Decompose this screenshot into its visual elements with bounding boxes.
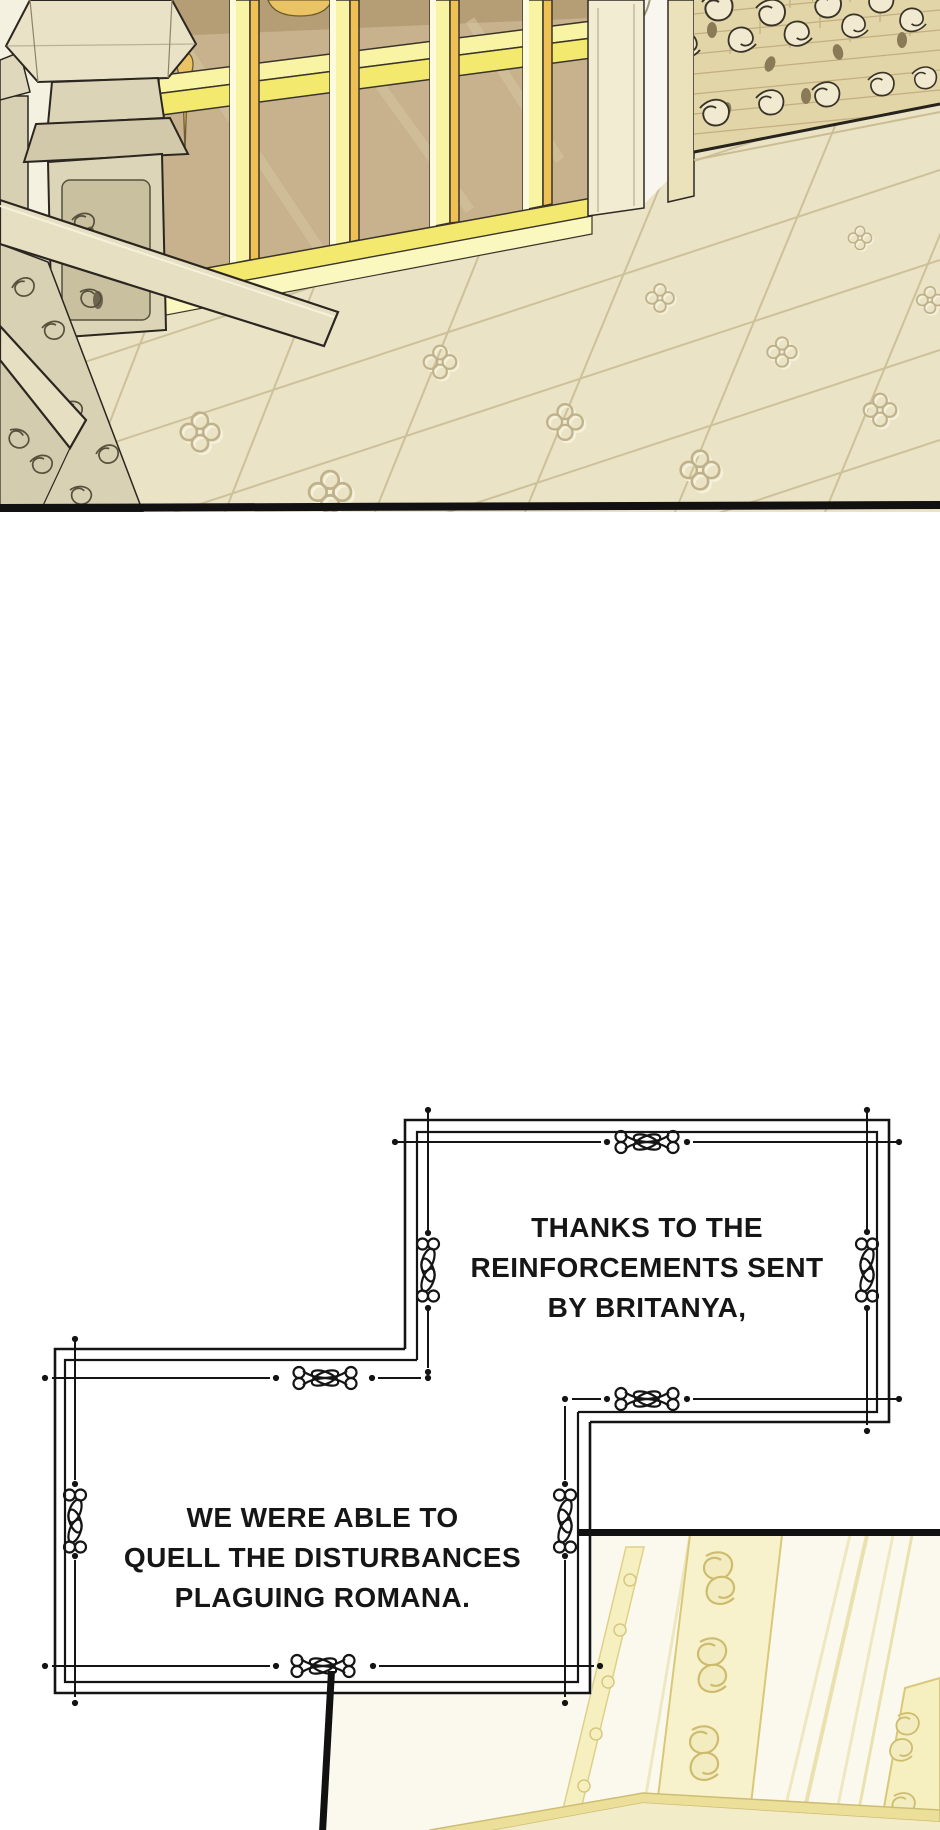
narration-text-line: REINFORCEMENTS SENT [405,1248,889,1288]
knot-ornament-icon [292,1655,355,1677]
narration-text-line: WE WERE ABLE TO [55,1498,590,1538]
narration-text-line: QUELL THE DISTURBANCES [55,1538,590,1578]
narration-text-line: BY BRITANYA, [405,1288,889,1328]
panel-top-border [0,501,940,512]
panel-bottom-border [578,1529,940,1536]
knot-ornament-icon [616,1131,679,1153]
narration-box-1: THANKS TO THE REINFORCEMENTS SENT BY BRI… [405,1208,889,1328]
narration-text-line: PLAGUING ROMANA. [55,1578,590,1618]
narration-text-line: THANKS TO THE [405,1208,889,1248]
comic-page: THANKS TO THE REINFORCEMENTS SENT BY BRI… [0,0,940,1830]
narration-box-2: WE WERE ABLE TO QUELL THE DISTURBANCES P… [55,1498,590,1618]
knot-ornament-icon [294,1367,357,1389]
knot-ornament-icon [616,1388,679,1410]
